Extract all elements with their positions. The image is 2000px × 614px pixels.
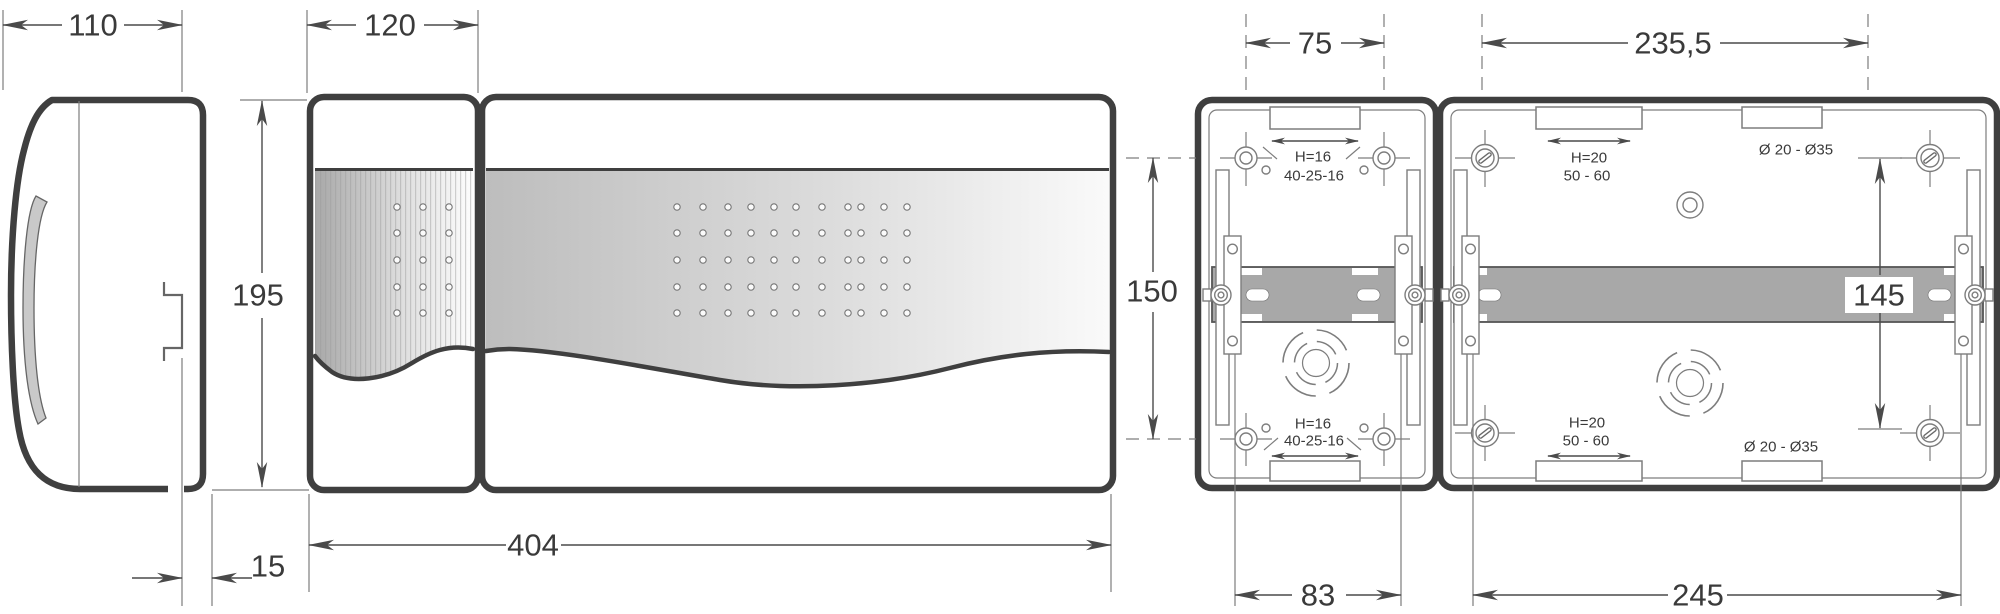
vent-hole (858, 310, 864, 316)
keyhole-mounting-hole (1472, 420, 1499, 447)
vent-hole (881, 230, 887, 236)
din-rail-slot (1357, 289, 1380, 301)
drawing-canvas: H=16 40-25-16 H=16 40-25-16 (0, 0, 2000, 614)
dimension-small-hole-spacing-x: 75 (1246, 14, 1384, 96)
cable-knockout-rect (1536, 461, 1642, 481)
vent-hole (793, 310, 799, 316)
knockout-height-label: H=20 (1569, 415, 1605, 432)
vent-hole (793, 230, 799, 236)
knockout-height-label: H=16 (1295, 149, 1331, 166)
side-view (11, 100, 203, 495)
vent-hole (446, 204, 452, 210)
knockout-height-label: H=16 (1295, 416, 1331, 433)
vent-hole (725, 310, 731, 316)
vent-hole (394, 310, 400, 316)
vent-hole (420, 204, 426, 210)
center-mounting-hole-inner (1683, 198, 1697, 212)
vent-hole (725, 257, 731, 263)
vent-hole (904, 257, 910, 263)
vent-hole (771, 284, 777, 290)
vent-hole (771, 310, 777, 316)
vent-hole (904, 204, 910, 210)
dimension-front-width: 404 (309, 494, 1111, 592)
vent-hole (858, 257, 864, 263)
vent-hole (674, 310, 680, 316)
vent-hole (446, 310, 452, 316)
vent-hole (394, 204, 400, 210)
vent-hole (819, 257, 825, 263)
din-rail-slot (1478, 289, 1501, 301)
pilot-hole (1360, 424, 1368, 432)
dimension-label-83: 83 (1301, 578, 1335, 613)
vent-hole (858, 230, 864, 236)
cable-knockout-rect (1270, 107, 1360, 129)
knockout-sizes-label: 40-25-16 (1284, 433, 1344, 450)
vent-hole (771, 230, 777, 236)
dimension-label-404: 404 (507, 528, 559, 563)
small-din-rail (1212, 267, 1422, 322)
vent-hole (771, 257, 777, 263)
dimension-label-145: 145 (1853, 278, 1905, 313)
mounting-hole (1235, 428, 1257, 450)
dimension-label-245: 245 (1672, 578, 1724, 613)
dimension-label-110: 110 (68, 8, 117, 43)
pilot-hole (1262, 166, 1270, 174)
vent-hole (771, 204, 777, 210)
vent-hole (748, 284, 754, 290)
din-rail-notch (1352, 314, 1378, 321)
vent-hole (748, 257, 754, 263)
keyhole-mounting-hole (1917, 420, 1944, 447)
dimension-label-195: 195 (232, 278, 284, 313)
vent-hole (793, 284, 799, 290)
dimension-door-panel-width: 120 (307, 8, 478, 94)
vent-hole (674, 230, 680, 236)
vent-hole (674, 257, 680, 263)
vent-hole (858, 204, 864, 210)
cable-knockout-rect (1536, 107, 1642, 129)
din-rail-slot (1928, 289, 1951, 301)
vent-hole (420, 230, 426, 236)
pilot-hole (1262, 424, 1270, 432)
rear-view-large: H=20 50 - 60 Ø 20 - Ø35 H=20 50 - 60 Ø 2… (1440, 100, 1997, 606)
vent-hole (858, 284, 864, 290)
vent-hole (904, 230, 910, 236)
vent-hole (394, 230, 400, 236)
mounting-hole (1373, 147, 1395, 169)
vent-hole (748, 204, 754, 210)
dimension-small-base-width: 83 (1235, 578, 1401, 613)
dimension-side-depth: 110 (3, 8, 182, 93)
vent-hole (700, 310, 706, 316)
mounting-hole (1235, 147, 1257, 169)
vent-hole (446, 284, 452, 290)
vent-hole (420, 310, 426, 316)
dimension-large-base-width: 245 (1473, 578, 1961, 613)
dimension-label-15: 15 (251, 549, 285, 584)
vent-hole (748, 310, 754, 316)
rear-view-small: H=16 40-25-16 H=16 40-25-16 (1198, 100, 1436, 606)
vent-hole (725, 204, 731, 210)
cable-knockout-rect (1270, 461, 1360, 481)
vent-hole (881, 284, 887, 290)
dimension-label-75: 75 (1298, 26, 1332, 61)
vent-hole (725, 284, 731, 290)
knockout-sizes-label: 50 - 60 (1563, 433, 1610, 450)
mounting-hole (1373, 428, 1395, 450)
vent-hole (725, 230, 731, 236)
vent-hole (700, 257, 706, 263)
vent-hole (674, 284, 680, 290)
vent-hole (748, 230, 754, 236)
vent-hole (881, 204, 887, 210)
pilot-hole (1360, 166, 1368, 174)
vent-hole (881, 310, 887, 316)
vent-hole (819, 230, 825, 236)
vent-hole (819, 310, 825, 316)
dimension-label-150: 150 (1126, 274, 1178, 309)
dimension-label-235-5: 235,5 (1634, 26, 1712, 61)
vent-hole (845, 230, 851, 236)
dimension-large-hole-spacing-x: 235,5 (1482, 14, 1868, 96)
vent-hole (819, 284, 825, 290)
vent-hole (845, 204, 851, 210)
vent-hole (845, 310, 851, 316)
gland-diameter-label: Ø 20 - Ø35 (1744, 439, 1818, 456)
vent-hole (819, 204, 825, 210)
vent-hole (845, 284, 851, 290)
vent-hole (420, 284, 426, 290)
vent-hole (881, 257, 887, 263)
vent-hole (904, 310, 910, 316)
vent-hole (700, 204, 706, 210)
knockout-height-label: H=20 (1571, 150, 1607, 167)
vent-hole (700, 230, 706, 236)
vent-hole (446, 230, 452, 236)
knockout-sizes-label: 50 - 60 (1564, 168, 1611, 185)
keyhole-mounting-hole (1472, 145, 1499, 172)
technical-drawing: H=16 40-25-16 H=16 40-25-16 (0, 0, 2000, 614)
vent-hole (793, 257, 799, 263)
din-rail-slot (1246, 289, 1269, 301)
vent-hole (674, 204, 680, 210)
keyhole-mounting-hole (1917, 145, 1944, 172)
din-rail-notch (1352, 268, 1378, 275)
vent-hole (420, 257, 426, 263)
dimension-label-120: 120 (364, 8, 416, 43)
cable-knockout-rect (1742, 107, 1822, 128)
front-view (310, 97, 1113, 490)
dimension-small-hole-spacing-y: 150 (1126, 158, 1196, 439)
dimension-height: 195 (212, 100, 309, 490)
knockout-sizes-label: 40-25-16 (1284, 168, 1344, 185)
vent-hole (904, 284, 910, 290)
cable-knockout-rect (1742, 461, 1822, 481)
vent-hole (394, 284, 400, 290)
vent-hole (845, 257, 851, 263)
vent-hole (793, 204, 799, 210)
gland-diameter-label: Ø 20 - Ø35 (1759, 142, 1833, 159)
vent-hole (394, 257, 400, 263)
vent-hole (446, 257, 452, 263)
vent-hole (700, 284, 706, 290)
